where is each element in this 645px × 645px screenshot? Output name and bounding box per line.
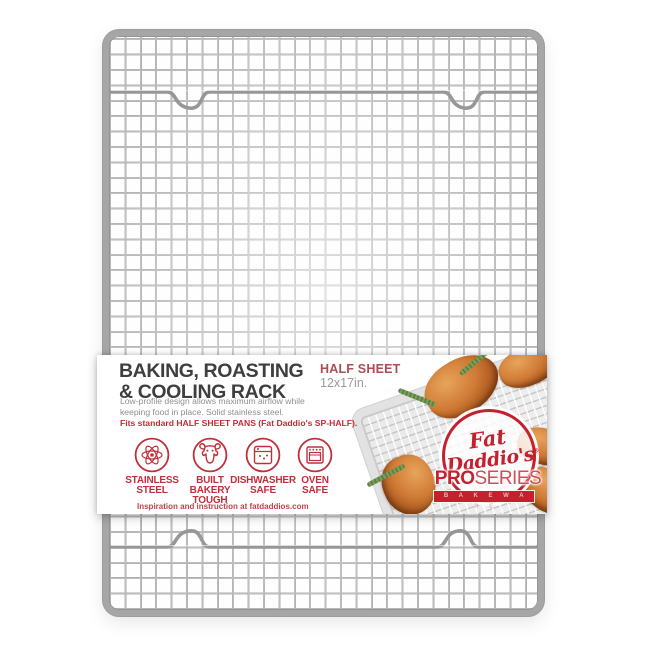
fits-note: Fits standard HALF SHEET PANS (Fat Daddi… (120, 418, 357, 428)
footer-note: Inspiration and instruction at fatdaddio… (137, 502, 309, 511)
bull-icon (192, 437, 228, 473)
registered-mark: ® (533, 447, 539, 455)
dishwasher-icon (245, 437, 281, 473)
product-title-line1: BAKING, ROASTING (119, 361, 303, 382)
feature-oven-safe: OVEN SAFE (277, 437, 353, 496)
size-info: HALF SHEET 12x17in. (320, 362, 400, 390)
product-photo-stage: BAKING, ROASTING & COOLING RACK HALF SHE… (0, 0, 645, 645)
bakeware-banner: B A K E W A R E (434, 491, 534, 502)
cooling-rack-grid (103, 30, 544, 616)
feature-label: OVEN SAFE (301, 476, 329, 496)
product-label-band: BAKING, ROASTING & COOLING RACK HALF SHE… (97, 355, 547, 514)
size-dimensions: 12x17in. (320, 376, 400, 390)
proseries-wordmark: PROSERIES (431, 469, 545, 489)
series-pro: PRO (435, 468, 475, 489)
product-description: Low-profile design allows maximum airflo… (120, 396, 305, 418)
feature-label: STAINLESS STEEL (125, 476, 179, 496)
atom-icon (134, 437, 170, 473)
support-feet-wires (103, 30, 544, 616)
size-name: HALF SHEET (320, 362, 400, 376)
series-series: SERIES (474, 468, 541, 489)
oven-icon (297, 437, 333, 473)
